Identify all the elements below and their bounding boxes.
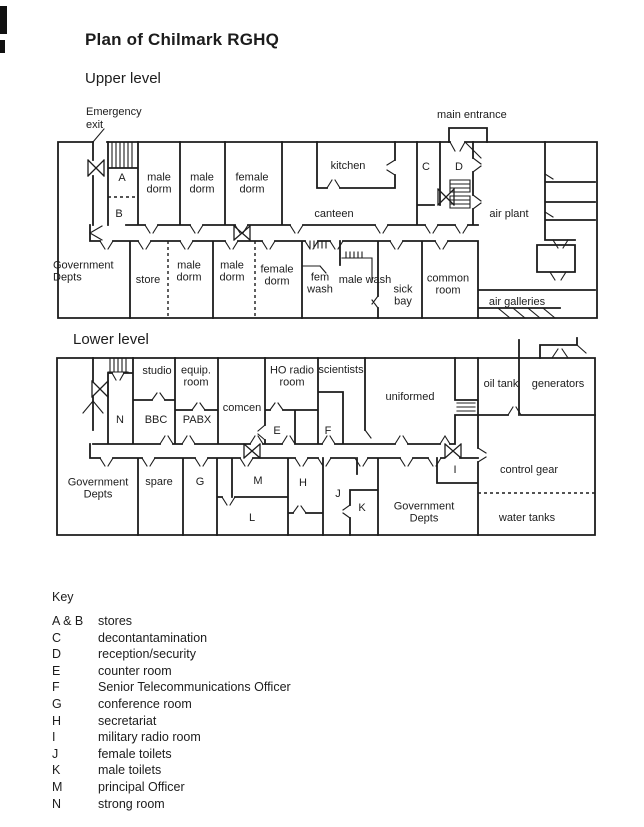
room-label-g: G xyxy=(196,476,205,488)
room-label-scientists: scientists xyxy=(318,364,363,376)
key-desc: military radio room xyxy=(98,730,201,744)
room-label-f: F xyxy=(325,425,332,437)
key-entry: Dreception/security xyxy=(52,647,291,664)
room-label-c: C xyxy=(422,161,430,173)
room-label-control-gear: control gear xyxy=(500,464,558,476)
key-entry: FSenior Telecommunications Officer xyxy=(52,680,291,697)
upper-stairs-hatching xyxy=(93,129,132,167)
key-code: H xyxy=(52,714,98,728)
key-desc: secretariat xyxy=(98,714,156,728)
key-code: I xyxy=(52,730,98,744)
room-label-sick-bay: sick bay xyxy=(387,284,419,309)
room-label-store: store xyxy=(136,274,160,286)
room-label-male-dorm: male dorm xyxy=(139,172,179,197)
room-label-male-dorm: male dorm xyxy=(212,260,252,285)
key-entry: Kmale toilets xyxy=(52,763,291,780)
room-label-female-dorm: female dorm xyxy=(255,264,299,289)
room-label-fem-wash: fem wash xyxy=(302,272,338,297)
key-desc: counter room xyxy=(98,664,172,678)
room-label-b: B xyxy=(115,208,122,220)
room-label-bbc: BBC xyxy=(145,414,168,426)
room-label-n: N xyxy=(116,414,124,426)
key-list: A & Bstores Cdecontantamination Drecepti… xyxy=(52,614,291,813)
key-desc: conference room xyxy=(98,697,192,711)
key-desc: decontantamination xyxy=(98,631,207,645)
key-code: N xyxy=(52,797,98,811)
key-entry: Hsecretariat xyxy=(52,714,291,731)
room-label-government-depts: Government Depts xyxy=(53,260,137,285)
room-label-i: I xyxy=(453,464,456,476)
emergency-exit-annotation: Emergency exit xyxy=(86,106,158,131)
key-code: K xyxy=(52,763,98,777)
key-desc: principal Officer xyxy=(98,780,185,794)
key-code: M xyxy=(52,780,98,794)
room-label-j: J xyxy=(335,488,341,500)
key-entry: Jfemale toilets xyxy=(52,747,291,764)
room-label-female-dorm: female dorm xyxy=(230,172,274,197)
key-desc: Senior Telecommunications Officer xyxy=(98,680,291,694)
room-label-a: A xyxy=(118,172,125,184)
key-code: J xyxy=(52,747,98,761)
room-label-comcen: comcen xyxy=(223,402,262,414)
key-desc: reception/security xyxy=(98,647,196,661)
key-entry: Gconference room xyxy=(52,697,291,714)
main-entrance-annotation: main entrance xyxy=(437,109,507,122)
room-label-studio: studio xyxy=(142,365,171,377)
room-label-m: M xyxy=(253,475,262,487)
room-label-male-dorm: male dorm xyxy=(169,260,209,285)
key-code: F xyxy=(52,680,98,694)
room-label-water-tanks: water tanks xyxy=(499,512,555,524)
key-code: D xyxy=(52,647,98,661)
key-desc: male toilets xyxy=(98,763,161,777)
room-label-common-room: common room xyxy=(420,273,476,298)
room-label-d: D xyxy=(455,161,463,173)
room-label-ho-radio-room: HO radio room xyxy=(264,365,320,390)
room-label-pabx: PABX xyxy=(183,414,212,426)
room-label-equip-room: equip. room xyxy=(175,365,217,390)
room-label-government-depts: Government Depts xyxy=(384,501,464,526)
key-code: C xyxy=(52,631,98,645)
room-label-air-plant: air plant xyxy=(489,208,528,220)
room-label-spare: spare xyxy=(145,476,173,488)
room-label-kitchen: kitchen xyxy=(331,160,366,172)
room-label-l: L xyxy=(249,512,255,524)
key-heading: Key xyxy=(52,590,74,604)
key-desc: strong room xyxy=(98,797,165,811)
room-label-air-galleries: air galleries xyxy=(489,296,545,308)
key-code: G xyxy=(52,697,98,711)
key-entry: Nstrong room xyxy=(52,797,291,814)
key-code: A & B xyxy=(52,614,98,628)
key-desc: stores xyxy=(98,614,132,628)
upper-interior-walls xyxy=(90,128,595,318)
room-label-male-wash: male wash xyxy=(339,274,392,286)
room-label-oil-tank: oil tank xyxy=(484,378,519,390)
room-label-k: K xyxy=(358,502,365,514)
room-label-h: H xyxy=(299,477,307,489)
room-label-uniformed: uniformed xyxy=(386,391,435,403)
key-entry: Imilitary radio room xyxy=(52,730,291,747)
key-code: E xyxy=(52,664,98,678)
room-label-government-depts: Government Depts xyxy=(56,477,140,502)
room-label-generators: generators xyxy=(532,378,585,390)
room-label-e: E xyxy=(273,425,280,437)
key-entry: A & Bstores xyxy=(52,614,291,631)
scanned-floor-plan-page: { "document": { "title": "Plan of Chilma… xyxy=(0,0,644,827)
key-desc: female toilets xyxy=(98,747,172,761)
room-label-male-dorm: male dorm xyxy=(182,172,222,197)
room-label-canteen: canteen xyxy=(314,208,353,220)
key-entry: Mprincipal Officer xyxy=(52,780,291,797)
key-entry: Ecounter room xyxy=(52,664,291,681)
key-entry: Cdecontantamination xyxy=(52,631,291,648)
